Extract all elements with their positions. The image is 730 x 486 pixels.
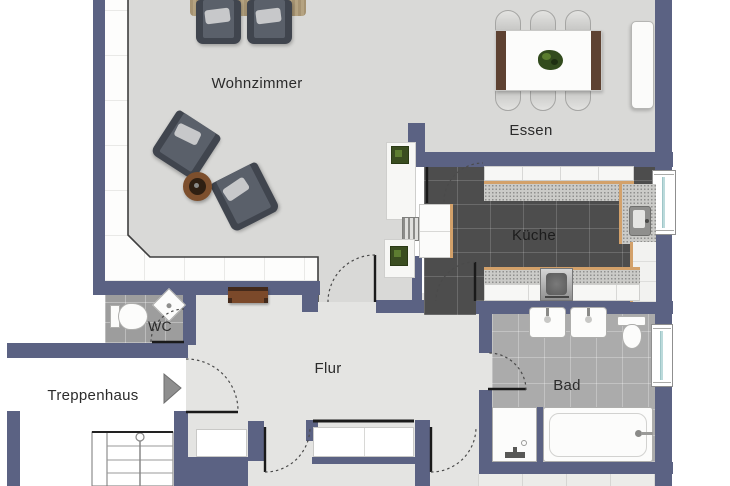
room-label-treppenhaus: Treppenhaus	[47, 387, 138, 404]
entrance-door-arc	[186, 359, 238, 411]
room-label-bad: Bad	[553, 377, 581, 394]
door-leaves	[152, 167, 526, 472]
room-label-kueche: Küche	[512, 227, 556, 244]
floorplan: Wohnzimmer Essen Küche Flur WC Bad Trepp…	[0, 0, 730, 486]
door-swing-arcs	[151, 163, 526, 472]
stairs	[92, 432, 173, 486]
room-label-flur: Flur	[314, 360, 341, 377]
room-label-wohnzimmer: Wohnzimmer	[211, 75, 302, 92]
kitchen-door-arc	[436, 262, 475, 301]
entrance-arrow-icon	[164, 374, 181, 403]
hall-door-arc	[431, 427, 476, 472]
room-label-essen: Essen	[509, 122, 552, 139]
hall-door-arc	[265, 427, 310, 472]
living-door-arc	[328, 255, 375, 302]
room-label-wc: WC	[148, 318, 172, 334]
bad-door-arc	[489, 353, 526, 390]
kitchen-door-arc	[444, 163, 483, 202]
